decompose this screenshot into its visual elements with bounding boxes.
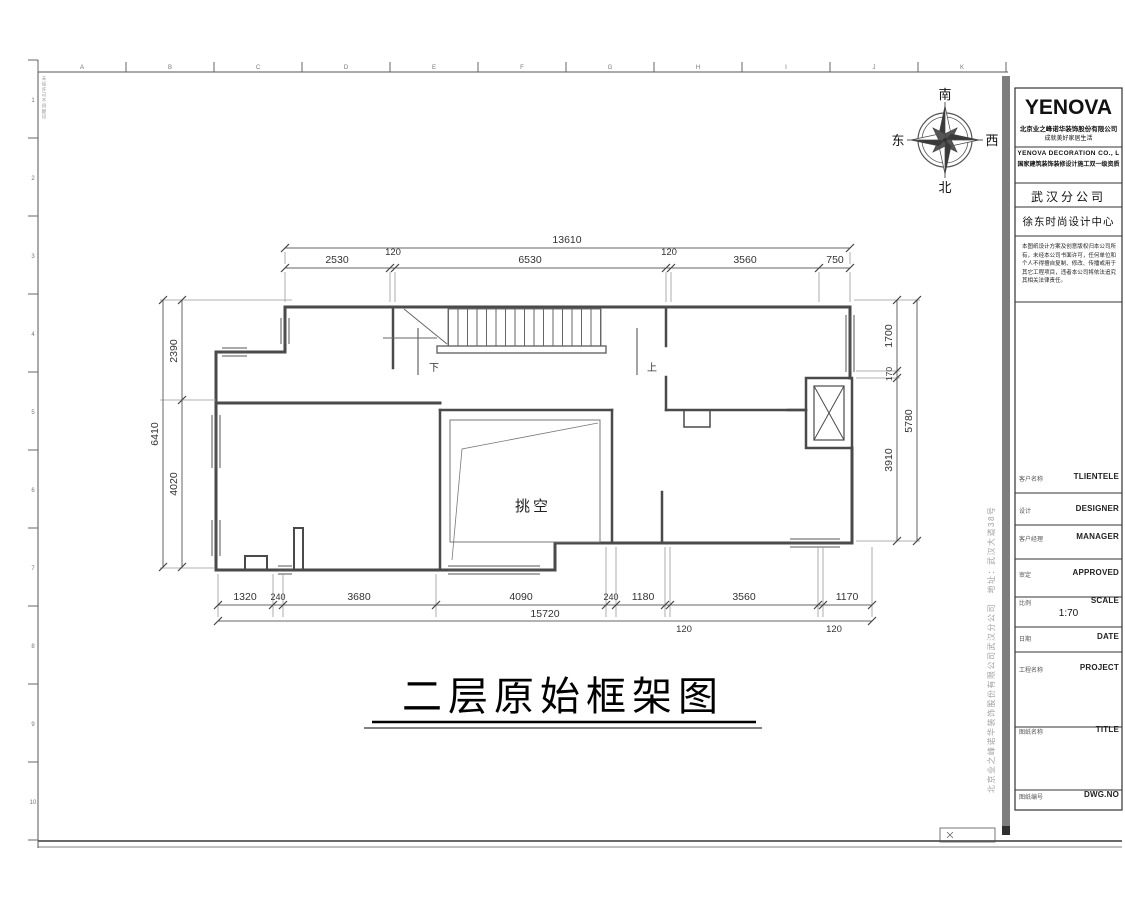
- void-area: [450, 420, 600, 560]
- dim: 240: [270, 592, 285, 602]
- compass-north-label: 北: [938, 180, 951, 195]
- row-cn-manager: 客户经理: [1019, 534, 1043, 543]
- grid-letter: D: [344, 65, 349, 71]
- row-en-dwgno: DWG.NO: [1084, 790, 1119, 799]
- dim: 2530: [325, 254, 349, 266]
- dim-bottom-total: 15720: [530, 608, 559, 620]
- window-left-upper: [212, 415, 220, 468]
- row-en-approved: APPROVED: [1073, 568, 1120, 577]
- window-bottom-small: [278, 566, 292, 574]
- wall-stub-bottom: [294, 528, 303, 570]
- grid-letter: C: [256, 65, 261, 71]
- grid-number: 1: [31, 98, 35, 104]
- dim: 4090: [509, 591, 533, 603]
- row-en-manager: MANAGER: [1076, 532, 1119, 541]
- dimension-labels: 13610 2530 120 6530 120 3560 750 1320 24…: [149, 234, 915, 635]
- row-cn-approved: 审定: [1019, 570, 1031, 579]
- grid-letter: E: [432, 65, 436, 71]
- dim: 3680: [347, 591, 371, 603]
- company-name-en: YENOVA DECORATION CO., L: [1015, 150, 1122, 157]
- grid-letter: H: [696, 65, 700, 71]
- elevator-shaft: [806, 378, 852, 448]
- dim: 1700: [883, 324, 895, 348]
- dim: 120: [676, 624, 692, 635]
- drawing-title: 二层原始框架图: [402, 674, 724, 719]
- grid-number: 6: [31, 488, 35, 494]
- yenova-logo: YENOVA: [1015, 96, 1122, 120]
- grid-letter: K: [960, 65, 964, 71]
- dim: 240: [603, 592, 618, 602]
- row-cn-dwgno: 图纸编号: [1019, 792, 1043, 801]
- compass-east-label: 东: [891, 133, 904, 148]
- column-pier: [245, 556, 267, 570]
- drawing-sheet: ABCDEFGHIJK12345678910: [0, 0, 1125, 900]
- stair-break-line: [404, 309, 447, 344]
- void-rail: [450, 420, 600, 542]
- grid-number: 10: [30, 800, 37, 806]
- qualification-line: 国家建筑装饰装修设计施工双一级资质: [1015, 159, 1122, 168]
- grid-letter: G: [608, 65, 613, 71]
- dim-top-total: 13610: [552, 234, 581, 246]
- grid-letter: J: [873, 65, 876, 71]
- scale-value: 1:70: [1015, 608, 1122, 619]
- compass-west-label: 西: [985, 133, 998, 148]
- grid-letter: I: [785, 65, 787, 71]
- void-label: 挑空: [515, 498, 551, 515]
- compass-point: [911, 140, 945, 146]
- window-bottom-center: [448, 566, 540, 574]
- sheet-divider-cap: [1002, 826, 1010, 835]
- grid-letter: B: [168, 65, 172, 71]
- elevator-x-icon: [814, 386, 844, 440]
- compass-center: [943, 138, 947, 142]
- dim-left-total: 6410: [149, 422, 161, 446]
- dim: 120: [661, 247, 677, 258]
- row-en-clientele: TLIENTELE: [1074, 472, 1119, 481]
- grid-number: 4: [31, 332, 35, 338]
- row-en-date: DATE: [1097, 632, 1119, 641]
- grid-number: 7: [31, 566, 35, 572]
- sheet-frame: [38, 60, 1122, 848]
- dim: 3910: [883, 448, 895, 472]
- dim: 3560: [732, 591, 756, 603]
- dim: 2390: [168, 339, 180, 363]
- dim: 1320: [233, 591, 257, 603]
- dim: 750: [826, 254, 844, 266]
- grid-number: 8: [31, 644, 35, 650]
- stair-down-label: 下: [429, 363, 439, 374]
- staircase: [383, 309, 637, 375]
- row-en-designer: DESIGNER: [1076, 504, 1119, 513]
- row-cn-project: 工程名称: [1019, 665, 1043, 674]
- side-company-note: 北京业之峰诺华装饰股份有限公司武汉分公司 地址：武汉大道38号: [986, 448, 997, 793]
- window-right-upper: [846, 315, 854, 372]
- row-en-title: TITLE: [1096, 725, 1119, 734]
- grid-number: 2: [31, 176, 35, 182]
- plan-canvas: ABCDEFGHIJK12345678910: [0, 0, 1125, 900]
- copyright-notice: 本图纸设计方案及创意版权归本公司所有，未经本公司书面许可，任何单位和个人不得擅自…: [1022, 243, 1116, 286]
- stair-treads: [448, 309, 601, 346]
- row-cn-designer: 设计: [1019, 506, 1031, 515]
- row-en-scale: SCALE: [1091, 596, 1119, 605]
- window-left-sill: [222, 348, 247, 356]
- row-cn-title: 图纸名称: [1019, 727, 1043, 736]
- grid-number: 9: [31, 722, 35, 728]
- sheet-divider-bar: [1002, 76, 1010, 832]
- dim: 120: [385, 247, 401, 258]
- stair-up-label: 上: [647, 362, 657, 374]
- grid-letter: F: [520, 65, 524, 71]
- dim: 170: [884, 367, 894, 381]
- window-bottom-right: [790, 539, 840, 547]
- compass-rose: 南 北 东 西: [891, 87, 998, 195]
- void-diagonals: [452, 423, 598, 560]
- dim: 4020: [168, 472, 180, 496]
- grid-number: 5: [31, 410, 35, 416]
- window-hatches: [212, 315, 854, 574]
- dimension-lines: [163, 248, 917, 621]
- dim: 3560: [733, 254, 757, 266]
- frame-stamp-box: [940, 828, 995, 842]
- company-slogan: 成就美好家居生活: [1015, 133, 1122, 142]
- compass-point: [945, 140, 951, 174]
- row-cn-date: 日期: [1019, 634, 1031, 643]
- row-cn-clientele: 客户名称: [1019, 474, 1043, 483]
- company-name-cn: 北京业之峰诺华装饰股份有限公司: [1015, 123, 1122, 133]
- window-upper-left: [281, 318, 289, 344]
- compass-point: [945, 134, 979, 140]
- window-left-lower: [212, 520, 220, 556]
- grid-letter: A: [80, 65, 84, 71]
- dim: 120: [826, 624, 842, 635]
- grid-number: 3: [31, 254, 35, 260]
- dim-right-total: 5780: [903, 409, 915, 433]
- row-en-project: PROJECT: [1080, 663, 1119, 672]
- frame-note: 未经许可不得翻印: [41, 76, 47, 146]
- dim: 6530: [518, 254, 542, 266]
- compass-south-label: 南: [938, 87, 951, 102]
- wall-notch: [684, 410, 710, 427]
- dim: 1180: [632, 591, 655, 603]
- dim: 1170: [836, 591, 859, 603]
- design-center-name: 徐东时尚设计中心: [1015, 214, 1122, 229]
- stair-stringer: [437, 346, 606, 353]
- row-cn-scale: 比例: [1019, 598, 1031, 607]
- branch-name: 武汉分公司: [1015, 188, 1122, 205]
